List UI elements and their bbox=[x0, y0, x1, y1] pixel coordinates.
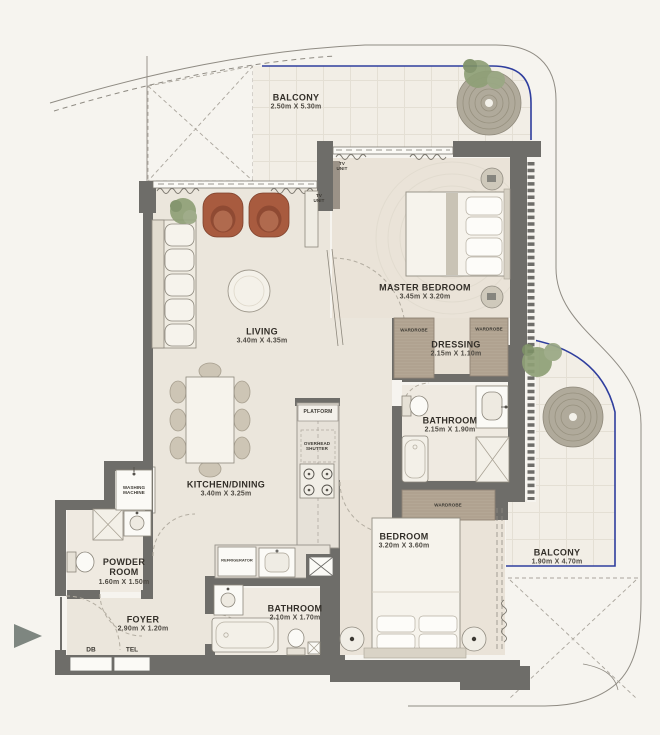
bed-master bbox=[406, 189, 510, 279]
bed-bedroom bbox=[364, 518, 466, 658]
wardrobe-bedroom bbox=[402, 490, 495, 520]
armchair bbox=[249, 193, 289, 237]
service-shaft bbox=[306, 554, 336, 579]
sofa bbox=[152, 220, 196, 348]
nightstand bbox=[481, 286, 503, 308]
vanity-sink bbox=[124, 511, 151, 536]
toilet bbox=[67, 552, 94, 572]
shower bbox=[476, 437, 509, 482]
tel-box bbox=[114, 657, 150, 671]
round-rug-right bbox=[543, 387, 603, 447]
kitchen-sink bbox=[259, 548, 295, 577]
coffee-table bbox=[228, 270, 270, 312]
vent-shaft bbox=[308, 642, 320, 654]
armchair bbox=[203, 193, 243, 237]
toilet bbox=[402, 396, 428, 416]
platform-box bbox=[298, 405, 338, 421]
floor-plan: BALCONY2.50m X 5.30m MASTER BEDROOM3.45m… bbox=[0, 0, 660, 735]
refrigerator-box bbox=[218, 547, 256, 576]
db-box bbox=[70, 657, 112, 671]
vanity-sink bbox=[476, 386, 508, 428]
hob bbox=[300, 464, 334, 498]
shower bbox=[93, 509, 123, 540]
toilet bbox=[287, 629, 305, 655]
nightstand bbox=[462, 627, 486, 651]
washing-machine-box bbox=[116, 467, 152, 510]
tv-unit-living bbox=[305, 191, 318, 247]
kitchen-platform bbox=[297, 403, 339, 548]
vanity-sink bbox=[214, 585, 243, 615]
floor-plan-graphics bbox=[0, 0, 660, 735]
bathtub bbox=[212, 618, 278, 652]
tv-unit-master bbox=[333, 161, 340, 209]
wardrobe-dressing-left bbox=[394, 318, 434, 378]
wardrobe-dressing-right bbox=[470, 318, 508, 376]
nightstand bbox=[481, 168, 503, 190]
nightstand bbox=[340, 627, 364, 651]
bathtub bbox=[402, 436, 428, 482]
db-tel-boxes bbox=[70, 657, 150, 671]
